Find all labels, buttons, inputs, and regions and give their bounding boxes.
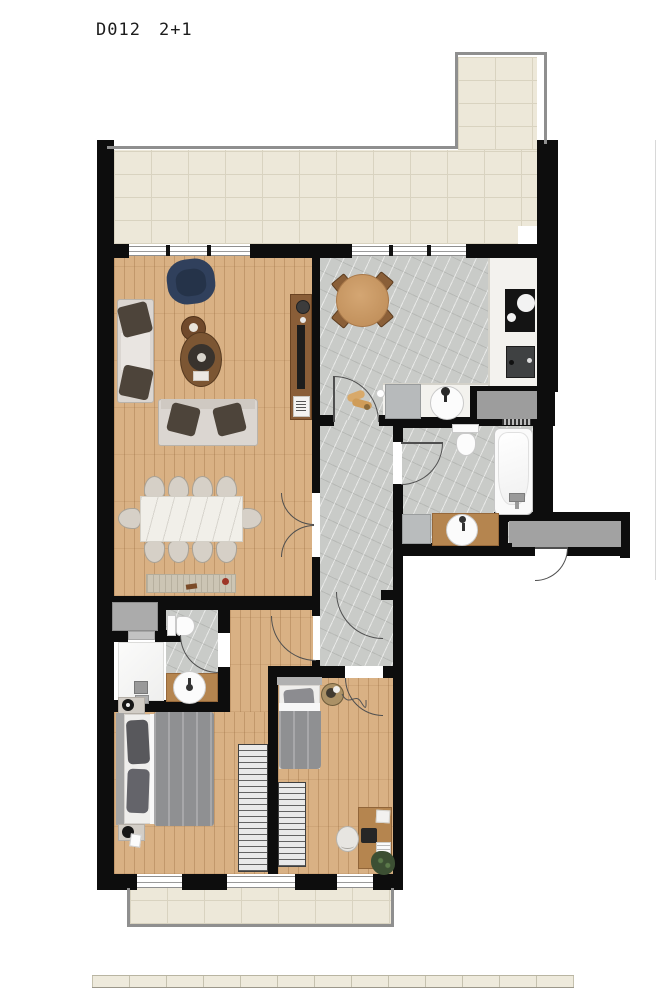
bed1-pillow	[126, 769, 150, 814]
wall-right-exterior	[537, 140, 558, 392]
balcony-notch	[518, 226, 537, 244]
wall-window-pier-2	[250, 244, 352, 258]
unit-type-label: 2+1	[159, 20, 193, 40]
living-window	[129, 246, 250, 256]
balcony-top-floor	[114, 150, 537, 244]
unit-code-label: D012	[96, 20, 141, 40]
wall-kitchen-bottom-left	[318, 415, 334, 426]
wardrobe	[238, 744, 268, 872]
entry-landing-mat	[509, 521, 621, 547]
window-mullion	[427, 245, 431, 256]
rug-item-red	[222, 578, 229, 585]
kitchen-sink-bowl	[517, 294, 535, 312]
toilet-tank	[452, 424, 479, 433]
bedroom1-window	[137, 876, 182, 888]
bed1-duvet	[154, 712, 214, 826]
wall-bath-right	[533, 424, 553, 516]
console-plant-pot	[296, 300, 310, 314]
wall-bottom-pier-1	[97, 874, 137, 890]
entry-door-leaf	[535, 547, 568, 549]
balcony-bottom-floor	[130, 888, 392, 924]
tv-screen	[297, 325, 305, 389]
kitchen-round-table	[336, 274, 389, 327]
wall-bottom-pier-2	[182, 874, 227, 890]
kitchen-door-leaf	[333, 376, 335, 422]
washing-machine	[402, 514, 431, 544]
desk-chair-back	[341, 843, 354, 849]
shaft-box	[477, 391, 537, 419]
wall-bottom-pier-4	[373, 874, 403, 890]
window-mullion	[166, 245, 170, 256]
wall-bottom-pier-3	[295, 874, 337, 890]
dining-table	[140, 496, 243, 542]
vent-grille	[502, 419, 531, 425]
wall-ensuite-inner-left	[108, 630, 128, 642]
desk-plant	[371, 851, 395, 875]
sofa-pillow	[118, 364, 154, 401]
railing-bottom	[127, 924, 394, 927]
floor-plan: D0122+1	[0, 0, 660, 991]
wall-ensuite-vertical	[158, 608, 166, 634]
speaker-grille	[296, 401, 306, 411]
wall-bedrooms-divider	[268, 676, 278, 874]
ensuite-machine-front	[128, 631, 155, 640]
side-table-cup	[189, 323, 198, 332]
ensuite-faucet-stem	[188, 678, 191, 685]
railing-top	[107, 146, 458, 149]
railing-bottom-right	[391, 888, 394, 927]
ensuite-washing-machine	[112, 602, 158, 631]
plan-title: D0122+1	[96, 20, 193, 40]
ensuite-faucet	[186, 684, 193, 691]
bedrooms-window	[227, 876, 295, 888]
toilet-bowl	[456, 433, 476, 456]
window-mullion	[207, 245, 211, 256]
dining-chair	[118, 508, 141, 529]
wall-window-pier-1	[114, 244, 129, 258]
desk-papers	[376, 810, 391, 824]
kitchen-window	[352, 246, 466, 256]
nightstand-notepad	[129, 833, 142, 847]
tray-bowl	[197, 353, 206, 362]
ensuite-toilet-tank	[167, 615, 176, 636]
bathroom-door-leaf	[401, 442, 443, 444]
oven-knob	[527, 358, 532, 363]
bed2-duvet	[279, 711, 321, 769]
dishwasher	[385, 384, 421, 419]
neighbor-balcony-strip	[92, 975, 574, 988]
coffee-table-book	[193, 371, 209, 381]
bathtub-faucet-stem	[515, 502, 519, 509]
railing-ext-left	[455, 54, 458, 149]
bathtub-faucet	[509, 493, 525, 502]
bedroom2-window	[337, 876, 373, 888]
adjacent-unit-line	[655, 140, 656, 580]
laptop	[361, 828, 377, 843]
wall-left-exterior	[97, 140, 114, 876]
balcony-top-extension-floor	[458, 57, 537, 150]
kitchen-sink-small-bowl	[507, 313, 516, 322]
shower-head	[134, 681, 148, 694]
wall-ensuite-right-upper	[218, 610, 230, 633]
railing-ext-top	[455, 52, 547, 55]
ensuite-toilet-bowl	[176, 616, 195, 636]
wardrobe	[278, 782, 306, 867]
oven-knob-dark	[509, 360, 514, 365]
vanity-faucet-stem	[462, 523, 465, 531]
wall-bedroom2-right	[393, 556, 403, 876]
basket-item-light	[333, 686, 340, 693]
vanity-faucet	[459, 516, 466, 523]
console-cup	[300, 317, 306, 323]
railing-ext-right	[544, 52, 547, 144]
bed1-headboard	[116, 713, 124, 825]
wall-living-kitchen-divider	[312, 256, 320, 493]
entry-door-arc	[535, 548, 568, 581]
bed2-headboard	[277, 677, 322, 685]
railing-bottom-left	[127, 888, 130, 927]
faucet-stem	[444, 395, 447, 402]
wall-window-pier-3	[466, 244, 540, 258]
counter-cup	[376, 389, 385, 398]
bed1-pillow	[126, 719, 150, 764]
lamp-center	[126, 703, 130, 707]
window-mullion	[389, 245, 393, 256]
